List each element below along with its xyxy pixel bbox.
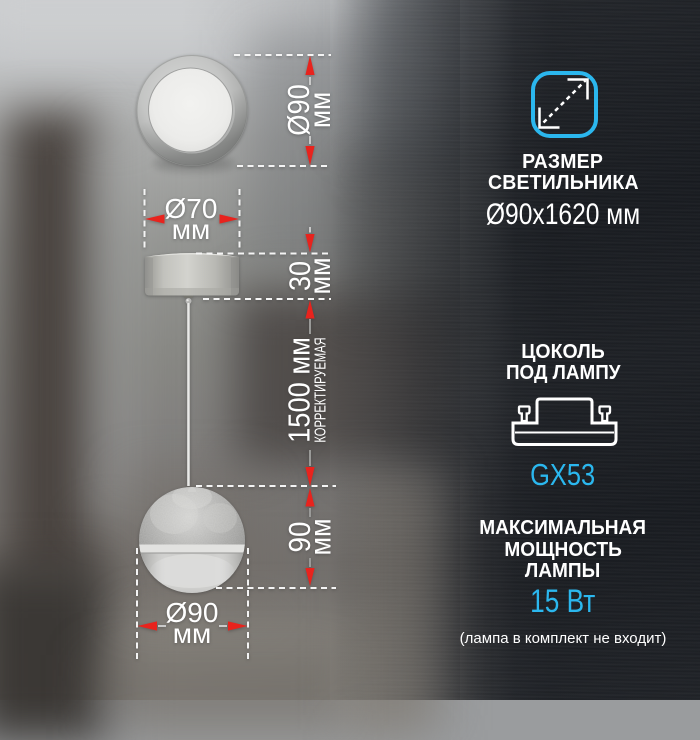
- svg-text:мм: мм: [173, 618, 212, 649]
- svg-text:мм: мм: [304, 257, 338, 294]
- svg-text:мм: мм: [304, 518, 338, 555]
- svg-text:мм: мм: [172, 214, 211, 245]
- svg-text:КОРРЕКТИРУЕМАЯ: КОРРЕКТИРУЕМАЯ: [312, 337, 329, 442]
- svg-text:мм: мм: [302, 92, 336, 128]
